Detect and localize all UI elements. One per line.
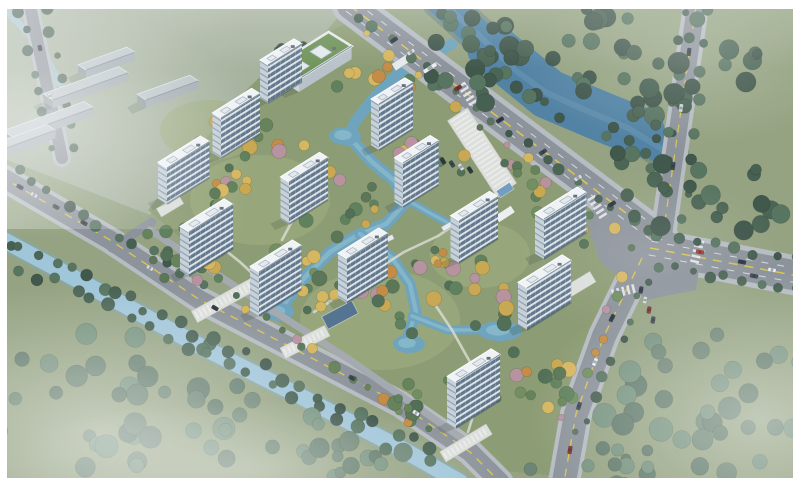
frame-top bbox=[0, 0, 800, 9]
frame-right bbox=[793, 0, 800, 485]
color-grade-overlay bbox=[0, 0, 800, 485]
aerial-masterplan-rendering bbox=[0, 0, 800, 485]
frame-left bbox=[0, 0, 7, 485]
aerial-masterplan-svg bbox=[0, 0, 800, 485]
frame-bottom bbox=[0, 478, 800, 485]
fog-layers bbox=[0, 0, 800, 485]
